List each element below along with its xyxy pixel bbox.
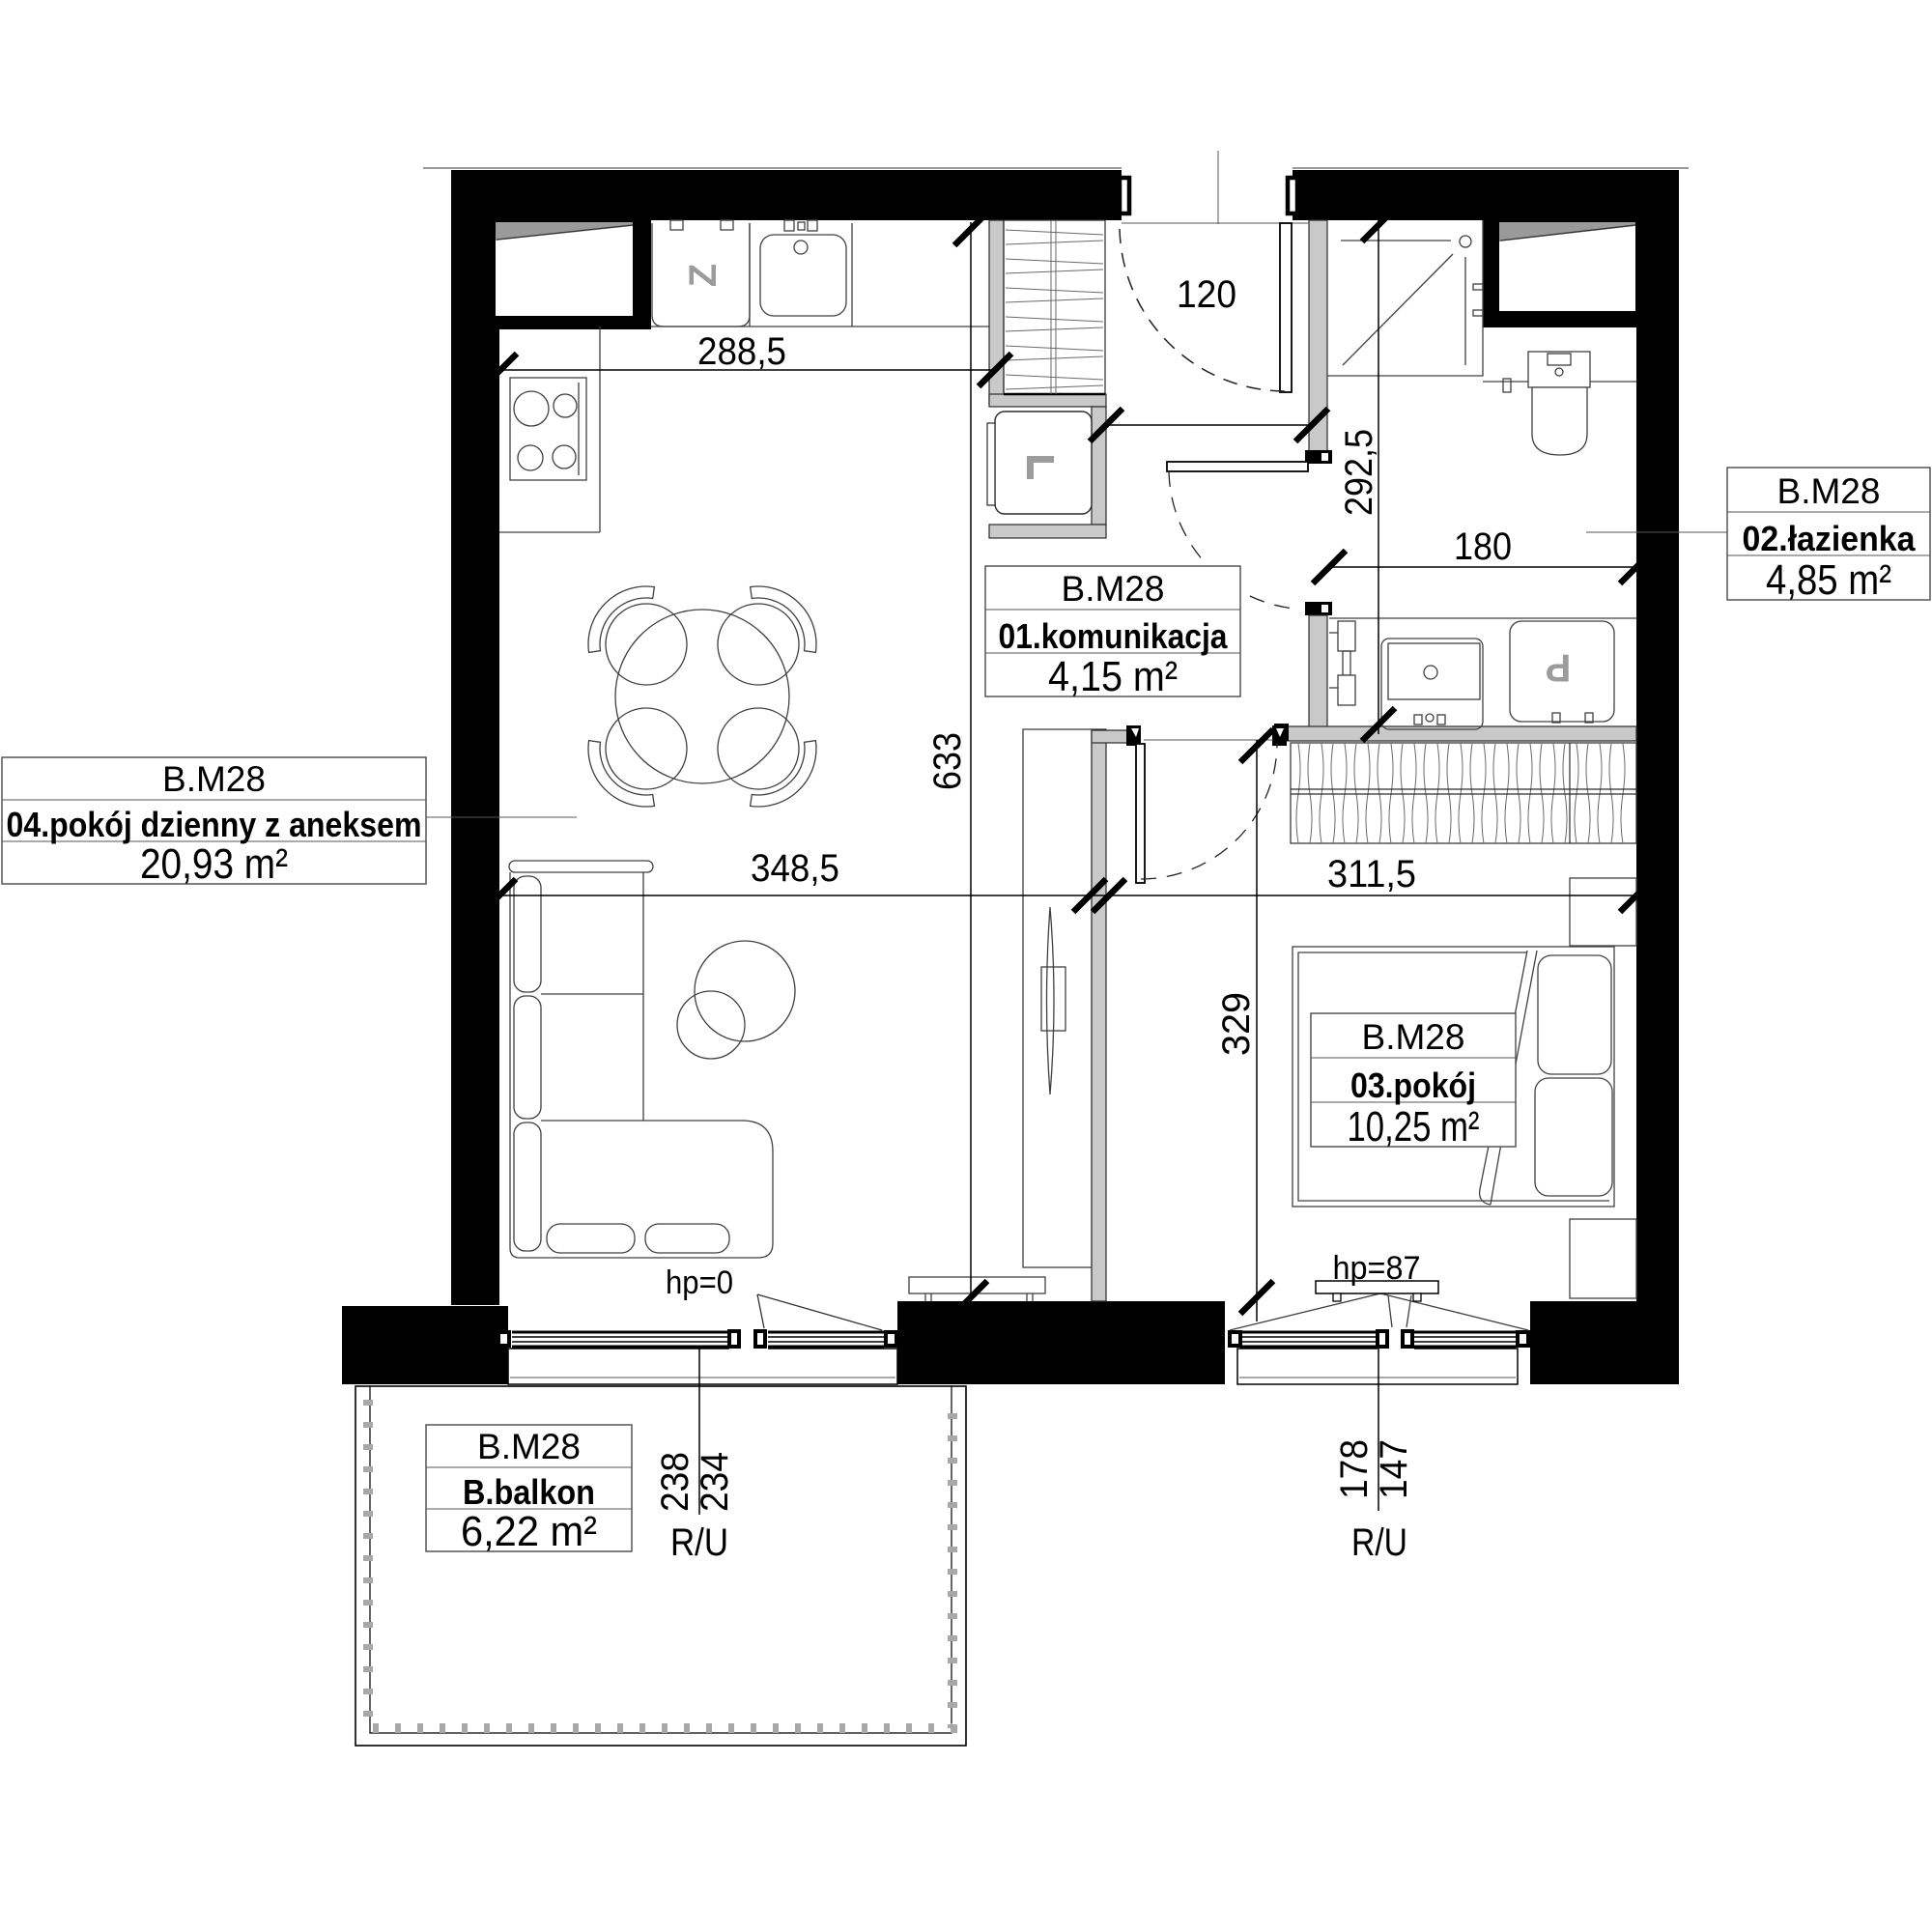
- svg-text:P: P: [1546, 646, 1572, 689]
- svg-text:633: 633: [926, 732, 969, 790]
- svg-text:B.M28: B.M28: [1777, 471, 1881, 511]
- svg-text:238: 238: [654, 1452, 696, 1512]
- svg-text:178: 178: [1333, 1439, 1376, 1499]
- svg-text:B.M28: B.M28: [1062, 569, 1165, 609]
- svg-text:01.komunikacja: 01.komunikacja: [999, 616, 1229, 656]
- svg-text:R/U: R/U: [1351, 1521, 1407, 1564]
- svg-text:147: 147: [1373, 1439, 1415, 1499]
- svg-text:20,93 m²: 20,93 m²: [140, 840, 288, 888]
- svg-text:hp=0: hp=0: [666, 1264, 733, 1301]
- svg-text:B.balkon: B.balkon: [463, 1472, 595, 1512]
- svg-text:288,5: 288,5: [697, 330, 786, 373]
- svg-text:120: 120: [1177, 273, 1236, 316]
- svg-text:348,5: 348,5: [751, 847, 839, 890]
- svg-text:10,25 m²: 10,25 m²: [1348, 1103, 1480, 1151]
- svg-text:6,22 m²: 6,22 m²: [461, 1508, 597, 1555]
- svg-text:R/U: R/U: [670, 1521, 728, 1564]
- svg-text:B.M28: B.M28: [477, 1427, 581, 1466]
- svg-text:Z: Z: [682, 264, 724, 287]
- svg-text:hp=87: hp=87: [1333, 1250, 1421, 1287]
- svg-text:180: 180: [1454, 526, 1512, 568]
- svg-text:B.M28: B.M28: [1362, 1017, 1465, 1057]
- svg-text:03.pokój: 03.pokój: [1350, 1065, 1476, 1105]
- svg-text:292,5: 292,5: [1338, 429, 1380, 516]
- svg-text:04.pokój dzienny z aneksem: 04.pokój dzienny z aneksem: [7, 805, 422, 844]
- svg-text:234: 234: [694, 1452, 736, 1512]
- svg-text:329: 329: [1215, 992, 1258, 1056]
- svg-text:02.łazienka: 02.łazienka: [1743, 519, 1917, 558]
- svg-text:4,85 m²: 4,85 m²: [1766, 556, 1891, 604]
- svg-text:B.M28: B.M28: [162, 759, 266, 799]
- svg-text:4,15 m²: 4,15 m²: [1048, 653, 1178, 700]
- svg-text:311,5: 311,5: [1327, 853, 1416, 895]
